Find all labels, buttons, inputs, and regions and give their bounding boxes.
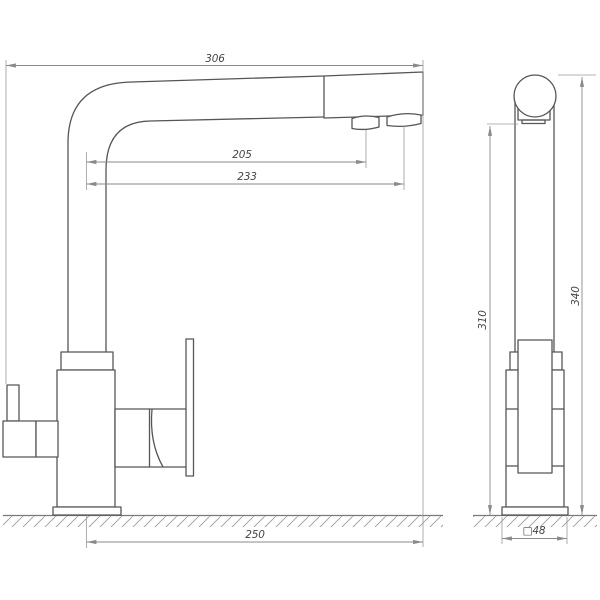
dim-250-label: 250 (245, 529, 265, 541)
side-nozzle (522, 120, 545, 124)
neck-collar (61, 352, 113, 370)
drawing-page: 306 205 233 250 310 340 □48 (0, 0, 600, 600)
dim-48-label: □48 (523, 525, 546, 537)
dim-310-label: 310 (477, 310, 489, 330)
filter-handle-block (3, 421, 36, 457)
technical-drawing-canvas: 306 205 233 250 310 340 □48 (0, 0, 600, 600)
front-view (3, 72, 423, 515)
dim-205-label: 205 (232, 149, 252, 161)
spout-inner-contour (106, 117, 324, 352)
side-view (502, 75, 568, 515)
mixer-handle-blade (186, 339, 194, 476)
aerator-nozzle (387, 114, 421, 127)
dim-306-label: 306 (205, 53, 225, 65)
side-base-flange (502, 507, 568, 515)
dim-233-label: 233 (237, 171, 256, 183)
mounting-surface (3, 516, 597, 528)
side-handle-blade (518, 340, 552, 473)
filtered-water-nozzle (352, 116, 379, 129)
base-flange (53, 507, 121, 515)
spout-head (324, 72, 423, 118)
surface-hatching-front (3, 516, 443, 527)
filter-handle-connector (36, 421, 58, 457)
side-spout-end-circle (514, 75, 556, 117)
dim-340-label: 340 (570, 286, 582, 306)
faucet-body (57, 370, 115, 507)
filter-handle-grip (7, 385, 19, 421)
